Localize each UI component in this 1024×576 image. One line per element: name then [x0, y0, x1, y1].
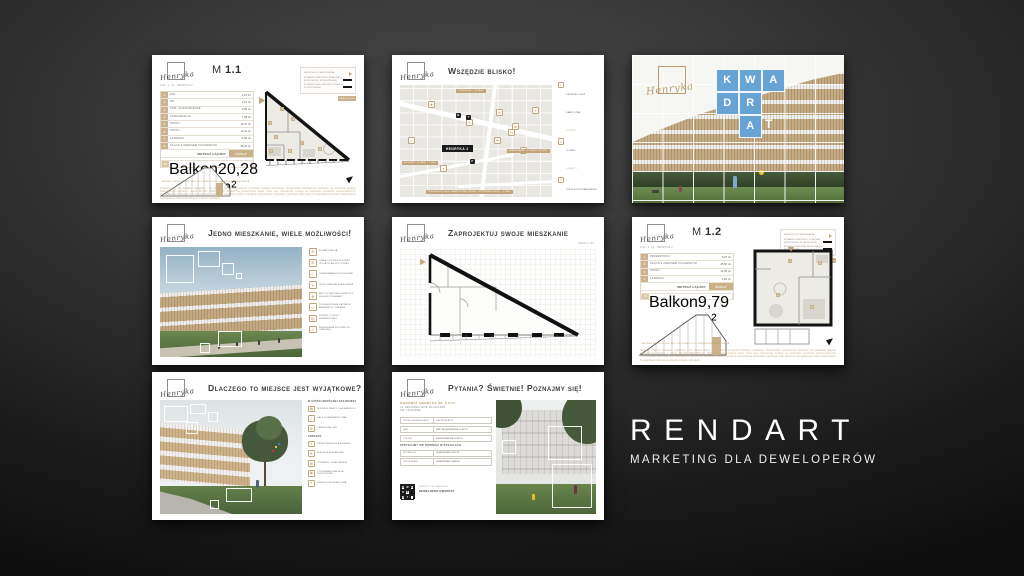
- room-area: 12,11 m²: [236, 128, 253, 134]
- slide-title: Zaprojektuj swoje mieszkanie: [448, 228, 568, 238]
- henryka-logo-text: Henryka: [646, 81, 695, 98]
- company-name: Kwadrat Henryka Sp. z o.o.: [400, 401, 456, 405]
- room-name: WC: [168, 99, 236, 105]
- table-row: 3Pokój11,65 m²: [641, 269, 733, 276]
- plan-disclaimer: Niniejszy rzut ma charakter poglądowy i …: [640, 349, 836, 362]
- room-table: 1Przedpokój3,97 m² 2Salon z aneksem kuch…: [640, 253, 734, 300]
- social-label: Facebook: [400, 450, 434, 457]
- feature-label: Powierzchnie łatwe w aranżacji i zmianie: [319, 304, 357, 310]
- legend-label: Ściana konstrukcyjna (bez możliwości wyb…: [784, 239, 823, 244]
- slide-plan-m12[interactable]: Henryka M 1.2 LOK. 2, UL. HENRYKA 2 1Prz…: [632, 217, 844, 365]
- decor-square: [208, 412, 218, 422]
- floorplan-drawing: [748, 247, 842, 349]
- group-heading: Ponadto: [308, 435, 358, 438]
- rendart-tagline: MARKETING DLA DEWELOPERÓW: [630, 454, 877, 466]
- decor-square: [210, 500, 219, 509]
- room-area: 4,90 m²: [236, 136, 253, 142]
- table-row: 2WC2,10 m²: [161, 99, 253, 106]
- decor-square: [548, 426, 582, 460]
- feature-item: ▭Powierzchnie łatwe w aranżacji i zmiani…: [309, 303, 357, 311]
- common-room-icon: ☀: [308, 480, 315, 487]
- instagram-handle[interactable]: @henryka2.osiedle: [434, 458, 492, 465]
- entrance-arrow-icon: [349, 72, 352, 76]
- room-no: 3: [641, 269, 648, 275]
- feature-list: ❄Klimatyzacja ⊞Okna o podwyższonej izola…: [309, 248, 357, 337]
- nursery-icon: ☺: [558, 138, 564, 144]
- apartment-title-number: 1.2: [705, 226, 722, 238]
- room-area: 2,00 m²: [236, 107, 253, 113]
- person-figure: [258, 340, 260, 345]
- slide-title: Wszędzie blisko!: [448, 66, 516, 76]
- legend-label: Ściana konstrukcyjna (bez możliwości wyb…: [304, 77, 343, 82]
- decor-square: [552, 464, 592, 508]
- portfolio-board: Henryka M 1.1 LOK. 1, UL. HENRYKA 2 1Hol…: [0, 0, 1024, 576]
- facebook-handle[interactable]: @henryka2.lodz.pl: [434, 450, 492, 457]
- room-name: Przedpokój: [648, 254, 716, 260]
- map-legend: ⌂Dworzec Łódź Fabryczna12 minut ☺Żłobek4…: [558, 82, 598, 203]
- apartment-address: LOK. 2, UL. HENRYKA 2: [640, 246, 673, 249]
- person-figure: [278, 338, 280, 343]
- map-street: [458, 179, 552, 188]
- smart-home-icon: ✦: [309, 281, 317, 289]
- tram-stop-icon: T: [466, 115, 471, 120]
- map-street: [400, 153, 514, 180]
- floorplan-drawing: [254, 87, 356, 181]
- apartment-title-number: 1.1: [225, 64, 242, 76]
- why-item: ✿Teren zielony: [308, 425, 358, 432]
- map-distance-label: Centrum - 10 min: [456, 89, 486, 93]
- entrance-arrow-icon: [829, 234, 832, 238]
- map-distance-label: Dworzec Łódź Fabryczna (Nowe Centrum Łod…: [426, 190, 513, 194]
- brick-wall-icon: ▤: [309, 315, 317, 323]
- contact-table: Telefon/WhatsApp+48 722 44 44 77 Mailzap…: [400, 417, 492, 444]
- henryka-logo: Henryka: [646, 65, 716, 109]
- total-value: 47,03 m²: [709, 283, 733, 290]
- table-row: 6Pokój12,11 m²: [161, 128, 253, 135]
- room-area: 2,10 m²: [236, 99, 253, 105]
- henryka-logo-text: Henryka: [400, 70, 435, 82]
- structural-wall-icon: [823, 241, 832, 243]
- why-item: ⚑Miejsca rowerowe: [308, 450, 358, 457]
- map-distance-label: Warszawa - 1 godz. 30 min: [507, 149, 550, 153]
- room-area: 9,79 m²: [698, 294, 732, 299]
- legend-item: ✎Szkoła podstawowa nr 2 i nr 145 minut: [558, 177, 598, 203]
- letter-tile: D: [716, 92, 739, 115]
- map-poi-icon: H: [508, 129, 515, 136]
- why-label: Teren zielony: [317, 427, 337, 430]
- plan-room-badge: 3: [810, 305, 814, 309]
- letter-tile: T: [765, 117, 772, 131]
- why-label: Świetlica osiedlowa: [317, 482, 346, 485]
- company-address: ul. Rzgowska 20/18, 90-019 Łódź: [400, 407, 445, 409]
- feature-item: ▤Ściany z cegły ceramicznej: [309, 315, 357, 323]
- feature-item: ✦Inteligentne mieszkanie: [309, 281, 357, 289]
- render-facade: [160, 284, 302, 337]
- email-value[interactable]: zapytaj@henryka-lodz.pl: [434, 426, 492, 433]
- kite: [272, 450, 274, 452]
- coworking-icon: ▦: [308, 406, 315, 413]
- bus-stop-icon: B: [456, 113, 461, 118]
- plan-room-badge: 3: [291, 117, 295, 121]
- letter-tile: A: [762, 69, 785, 92]
- decor-square: [502, 440, 516, 454]
- map-poi-icon: ✚: [428, 101, 435, 108]
- plan-room-badge: 8: [318, 147, 322, 151]
- decor-square: [198, 251, 220, 267]
- room-name: Pokój: [168, 121, 236, 127]
- social-row: Instagram@henryka2.osiedle: [400, 458, 492, 465]
- henryka-logo-text: Henryka: [160, 70, 195, 82]
- why-item: ⌂Salę konferencyjną: [308, 415, 358, 422]
- feature-item: ❄Klimatyzacja: [309, 248, 357, 256]
- green-area-icon: ✿: [308, 425, 315, 432]
- room-no: 8: [161, 143, 168, 149]
- table-row: 2Salon z aneksem kuchennym25,60 m²: [641, 261, 733, 268]
- slide-map[interactable]: Henryka Wszędzie blisko! ✚ ⌂ ✝ ✎ ✉ ⚑ ✿ ★…: [392, 55, 604, 203]
- contact-label: Telefon/WhatsApp: [400, 417, 434, 424]
- slide-cover-kwadrat[interactable]: K W A D R A T Henryka: [632, 55, 844, 203]
- feature-label: Ogrzewanie podłogowe: [319, 273, 353, 276]
- feature-label: Ściany z cegły ceramicznej: [319, 315, 357, 321]
- map-distance-label: Rzgów - 20 min - 7 km: [402, 161, 438, 165]
- slide-contact[interactable]: Henryka Pytania? Świetnie! Poznajmy się!…: [392, 372, 604, 520]
- table-row: 7Łazienka4,90 m²: [161, 136, 253, 143]
- room-no: 5: [161, 121, 168, 127]
- map-street: [400, 99, 552, 148]
- room-no: 1: [641, 254, 648, 260]
- contact-label: Online: [400, 435, 434, 442]
- contact-label: Mail: [400, 426, 434, 433]
- apartment-title-prefix: M: [692, 226, 702, 238]
- poi-name: Dworzec Łódź Fabryczna: [566, 94, 585, 114]
- legend-item: ☺Żłobek4 minuty: [558, 138, 598, 174]
- conference-room-icon: ⌂: [308, 415, 315, 422]
- low-fees-icon: ❖: [309, 292, 317, 300]
- social-row: Facebook@henryka2.lodz.pl: [400, 450, 492, 457]
- henryka-logo: Henryka: [160, 223, 200, 249]
- room-name: Pom. gospodarcze: [168, 107, 236, 113]
- building-photo: [496, 400, 596, 514]
- why-item: ▤Komórki lokatorskie: [308, 460, 358, 467]
- legend-row: Wejście do mieszkania: [784, 234, 832, 238]
- scale-note: SKALA 1:50: [578, 242, 594, 245]
- henryka-logo: Henryka: [400, 61, 440, 87]
- map-poi-icon: ☀: [532, 107, 539, 114]
- building-render: [160, 247, 302, 357]
- plan-room-badge: 4: [818, 261, 822, 265]
- company-nip: NIP: 7262678490: [400, 410, 421, 412]
- storage-icon: ▤: [308, 460, 315, 467]
- plan-footnote: * Metraż balkonu nie jest wliczany do po…: [640, 343, 729, 345]
- website-value[interactable]: www.henryka-lodz.pl: [434, 435, 492, 442]
- decor-square: [218, 331, 242, 347]
- plan-room-badge: 4: [274, 135, 278, 139]
- layout-icon: ▭: [309, 303, 317, 311]
- floor-heating-icon: ♨: [309, 270, 317, 278]
- why-label: Podziemne miejsca postojowe: [317, 471, 358, 477]
- why-item: ✦Przestrzeń dla biznesu: [308, 441, 358, 448]
- plan-room-badge: 5: [269, 149, 273, 153]
- room-no: 2: [641, 261, 648, 267]
- plan-room-badge: 6: [288, 149, 292, 153]
- decor-square: [222, 263, 234, 275]
- room-area: 11,65 m²: [716, 269, 733, 275]
- tree: [256, 416, 282, 440]
- decor-square: [166, 255, 194, 283]
- kite: [278, 443, 280, 445]
- kwadrat-developer-logo: K W A D R A T: [400, 484, 415, 499]
- room-no: 4: [161, 114, 168, 120]
- room-name: Hol: [168, 92, 236, 98]
- room-name: Salon z aneksem kuchennym: [168, 143, 236, 149]
- room-name: Łazienka: [648, 276, 716, 282]
- entrance-arrow-icon: [420, 259, 426, 265]
- city-map[interactable]: ✚ ⌂ ✝ ✎ ✉ ⚑ ✿ ★ ☀ H B T P HENRYKA 2 Cent…: [400, 85, 552, 197]
- feature-label: Klimatyzacja: [319, 250, 338, 253]
- empty-floorplan: [400, 249, 596, 357]
- room-name: Łazienka: [168, 136, 236, 142]
- decor-square: [236, 273, 242, 279]
- room-area: 10,70 m²: [236, 121, 253, 127]
- room-name: Pokój: [168, 128, 236, 134]
- plan-room-badge: 7: [300, 141, 304, 145]
- train-station-icon: ⌂: [558, 82, 564, 88]
- letter-tile: A: [739, 115, 762, 138]
- developer-note: Inwestycję realizuje: [419, 486, 448, 488]
- henryka-logo: Henryka: [400, 223, 440, 249]
- plan-room-badge: 2: [776, 293, 780, 297]
- school-icon: ✎: [558, 177, 564, 183]
- apartment-title-prefix: M: [212, 64, 222, 76]
- henryka-logo-text: Henryka: [160, 387, 195, 399]
- henryka-logo-text: Henryka: [160, 232, 195, 244]
- room-no: 1: [161, 92, 168, 98]
- legend-label: Wejście do mieszkania: [304, 72, 344, 75]
- balcony-ticks: [766, 329, 790, 344]
- decor-square: [190, 404, 206, 414]
- why-label: Komórki lokatorskie: [317, 462, 347, 465]
- room-name: Komunikacja: [168, 114, 236, 120]
- kite: [275, 446, 277, 448]
- why-label: Miejsca rowerowe: [317, 452, 344, 455]
- person-figure: [256, 480, 259, 488]
- room-no: 3: [161, 107, 168, 113]
- render-facade: [160, 422, 250, 488]
- poi-name: Żłobek: [566, 150, 575, 152]
- air-conditioning-icon: ❄: [309, 248, 317, 256]
- phone-value[interactable]: +48 722 44 44 77: [434, 417, 492, 424]
- social-label: Instagram: [400, 458, 434, 465]
- henryka-logo-text: Henryka: [400, 387, 435, 399]
- feature-item: ✔Mieszkania gotowe do odbioru: [309, 326, 357, 334]
- henryka-map-pin[interactable]: HENRYKA 2: [442, 145, 473, 152]
- total-row: METRAŻ ŁĄCZNY74,55 m²: [161, 150, 253, 158]
- henryka-logo-text: Henryka: [640, 232, 675, 244]
- decor-square: [226, 488, 252, 502]
- feature-item: ♨Ogrzewanie podłogowe: [309, 270, 357, 278]
- legend-row: Wejście do mieszkania: [304, 72, 352, 76]
- building-render: [160, 400, 302, 514]
- window-icon: ⊞: [309, 259, 317, 267]
- letter-tile: K: [716, 69, 739, 92]
- apartment-title: M 1.1: [212, 64, 242, 76]
- why-label: Miejsce pracy dla każdego: [317, 408, 356, 411]
- plan-room-badge: 2: [280, 107, 284, 111]
- table-row: 1Przedpokój3,97 m²: [641, 254, 733, 261]
- poi-distance: 4 minuty: [566, 168, 577, 170]
- map-poi-icon: ⌂: [408, 137, 415, 144]
- developer-name: DEWELOPER KWADRAT: [419, 490, 455, 493]
- table-row: 3Pom. gospodarcze2,00 m²: [161, 107, 253, 114]
- decor-square: [200, 343, 210, 353]
- room-name: Pokój: [648, 269, 716, 275]
- room-table: 1Hol2,07 m² 2WC2,10 m² 3Pom. gospodarcze…: [160, 91, 254, 168]
- letter-tile: R: [739, 92, 762, 115]
- room-area: 2,07 m²: [236, 92, 253, 98]
- plan-footnote: * Metraż balkonu nie jest wliczany do po…: [160, 181, 249, 183]
- contact-row: Onlinewww.henryka-lodz.pl: [400, 435, 492, 442]
- slide-why-special[interactable]: Henryka Dlaczego to miejsce jest wyjątko…: [152, 372, 364, 520]
- socials-table: Facebook@henryka2.lodz.pl Instagram@henr…: [400, 450, 492, 468]
- room-no: B1: [642, 294, 649, 299]
- feature-label: Inteligentne mieszkanie: [319, 284, 353, 287]
- why-item: ☀Świetlica osiedlowa: [308, 480, 358, 487]
- plan-room-badge: 1: [788, 259, 792, 263]
- henryka-logo-text: Henryka: [400, 232, 435, 244]
- feature-label: Mieszkania gotowe do odbioru: [319, 327, 357, 333]
- room-no: 7: [161, 136, 168, 142]
- entrance-arrow-icon: [259, 97, 265, 104]
- legend-item: ⌂Dworzec Łódź Fabryczna12 minut: [558, 82, 598, 136]
- room-no: 4: [641, 276, 648, 282]
- room-area: 3,97 m²: [716, 254, 733, 260]
- why-list: W części wspólnej znajdziesz ▦Miejsce pr…: [308, 398, 358, 490]
- floorplan-m11: 1 2 3 4 5 6 7 8: [254, 87, 356, 181]
- tree-trunk: [264, 458, 266, 486]
- total-label: METRAŻ ŁĄCZNY: [161, 150, 229, 157]
- table-row: 4Łazienka4,81 m²: [641, 276, 733, 283]
- parking-icon: ▣: [308, 470, 315, 477]
- feature-item: ⊞Okna o podwyższonej izolacji akustyczne…: [309, 259, 357, 267]
- why-item: ▦Miejsce pracy dla każdego: [308, 406, 358, 413]
- slide-title: Jedno mieszkanie, wiele możliwości!: [208, 228, 352, 238]
- contact-row: Mailzapytaj@henryka-lodz.pl: [400, 426, 492, 433]
- logo-cell: [410, 495, 414, 500]
- structural-wall-icon: [343, 79, 352, 81]
- legend-label: Wejście do mieszkania: [784, 234, 824, 237]
- feature-label: Okna o podwyższonej izolacji akustycznej: [319, 260, 357, 266]
- plan-room-badge: 1: [268, 121, 272, 125]
- table-row: 5Pokój10,70 m²: [161, 121, 253, 128]
- decor-square: [186, 422, 198, 434]
- map-poi-icon: ✉: [496, 109, 503, 116]
- feature-item: ❖Bezczynszowe osiedle z niskimi opłatami: [309, 292, 357, 300]
- legend-row: Ściana konstrukcyjna (bez możliwości wyb…: [304, 77, 352, 82]
- parking-icon: P: [470, 159, 475, 164]
- grid-paper[interactable]: [400, 249, 596, 357]
- poi-name: Szkoła podstawowa nr 2 i nr 14: [566, 189, 596, 203]
- checkmark-icon: ✔: [309, 326, 317, 334]
- rendart-brand: RENDART MARKETING DLA DEWELOPERÓW: [630, 414, 877, 466]
- why-item: ▣Podziemne miejsca postojowe: [308, 470, 358, 477]
- map-poi-icon: ✝: [440, 165, 447, 172]
- feature-label: Bezczynszowe osiedle z niskimi opłatami: [319, 293, 357, 299]
- apartment-address: LOK. 1, UL. HENRYKA 2: [160, 84, 193, 87]
- room-no: 2: [161, 99, 168, 105]
- apartment-title: M 1.2: [692, 226, 722, 238]
- room-area: 7,08 m²: [236, 114, 253, 120]
- why-label: Salę konferencyjną: [317, 417, 346, 420]
- floorplan-m12: 1 2 3 4: [748, 247, 842, 349]
- total-label: METRAŻ ŁĄCZNY: [641, 283, 709, 290]
- map-poi-icon: ✎: [466, 119, 473, 126]
- slide-features[interactable]: Henryka Jedno mieszkanie, wiele możliwoś…: [152, 217, 364, 365]
- socials-heading: Spotkajmy się również w socialach: [400, 444, 461, 447]
- decor-square: [164, 406, 188, 422]
- map-poi-icon: ⚑: [494, 137, 501, 144]
- slide-plan-m11[interactable]: Henryka M 1.1 LOK. 1, UL. HENRYKA 2 1Hol…: [152, 55, 364, 203]
- poi-distance: 12 minut: [566, 130, 576, 132]
- slide-title: Dlaczego to miejsce jest wyjątkowe?: [208, 383, 362, 393]
- room-name: Balkon: [649, 294, 698, 299]
- person-figure: [532, 494, 535, 500]
- letter-tile: W: [739, 69, 762, 92]
- table-row: 1Hol2,07 m²: [161, 92, 253, 99]
- rendart-wordmark: RENDART: [630, 414, 877, 448]
- legend-row: Ściana konstrukcyjna (bez możliwości wyb…: [784, 239, 832, 244]
- total-row: METRAŻ ŁĄCZNY47,03 m²: [641, 283, 733, 291]
- room-area: 35,22 m²: [236, 143, 253, 149]
- table-row: 4Komunikacja7,08 m²: [161, 114, 253, 121]
- total-value: 74,55 m²: [229, 150, 253, 157]
- slide-design-your-flat[interactable]: Henryka Zaprojektuj swoje mieszkanie SKA…: [392, 217, 604, 365]
- room-name: Salon z aneksem kuchennym: [648, 261, 716, 267]
- table-row: 8Salon z aneksem kuchennym35,22 m²: [161, 143, 253, 150]
- room-no: 6: [161, 128, 168, 134]
- bike-spots-icon: ⚑: [308, 450, 315, 457]
- room-area: 4,81 m²: [716, 276, 733, 282]
- slide-title: Pytania? Świetnie! Poznajmy się!: [448, 383, 582, 393]
- contact-row: Telefon/WhatsApp+48 722 44 44 77: [400, 417, 492, 424]
- business-space-icon: ✦: [308, 441, 315, 448]
- plan-disclaimer: Niniejszy rzut ma charakter poglądowy i …: [160, 187, 356, 200]
- group-heading: W części wspólnej znajdziesz: [308, 400, 358, 403]
- room-area: 25,60 m²: [716, 261, 733, 267]
- balcony-row: B1Balkon9,79 m²: [641, 293, 733, 300]
- why-label: Przestrzeń dla biznesu: [317, 443, 351, 446]
